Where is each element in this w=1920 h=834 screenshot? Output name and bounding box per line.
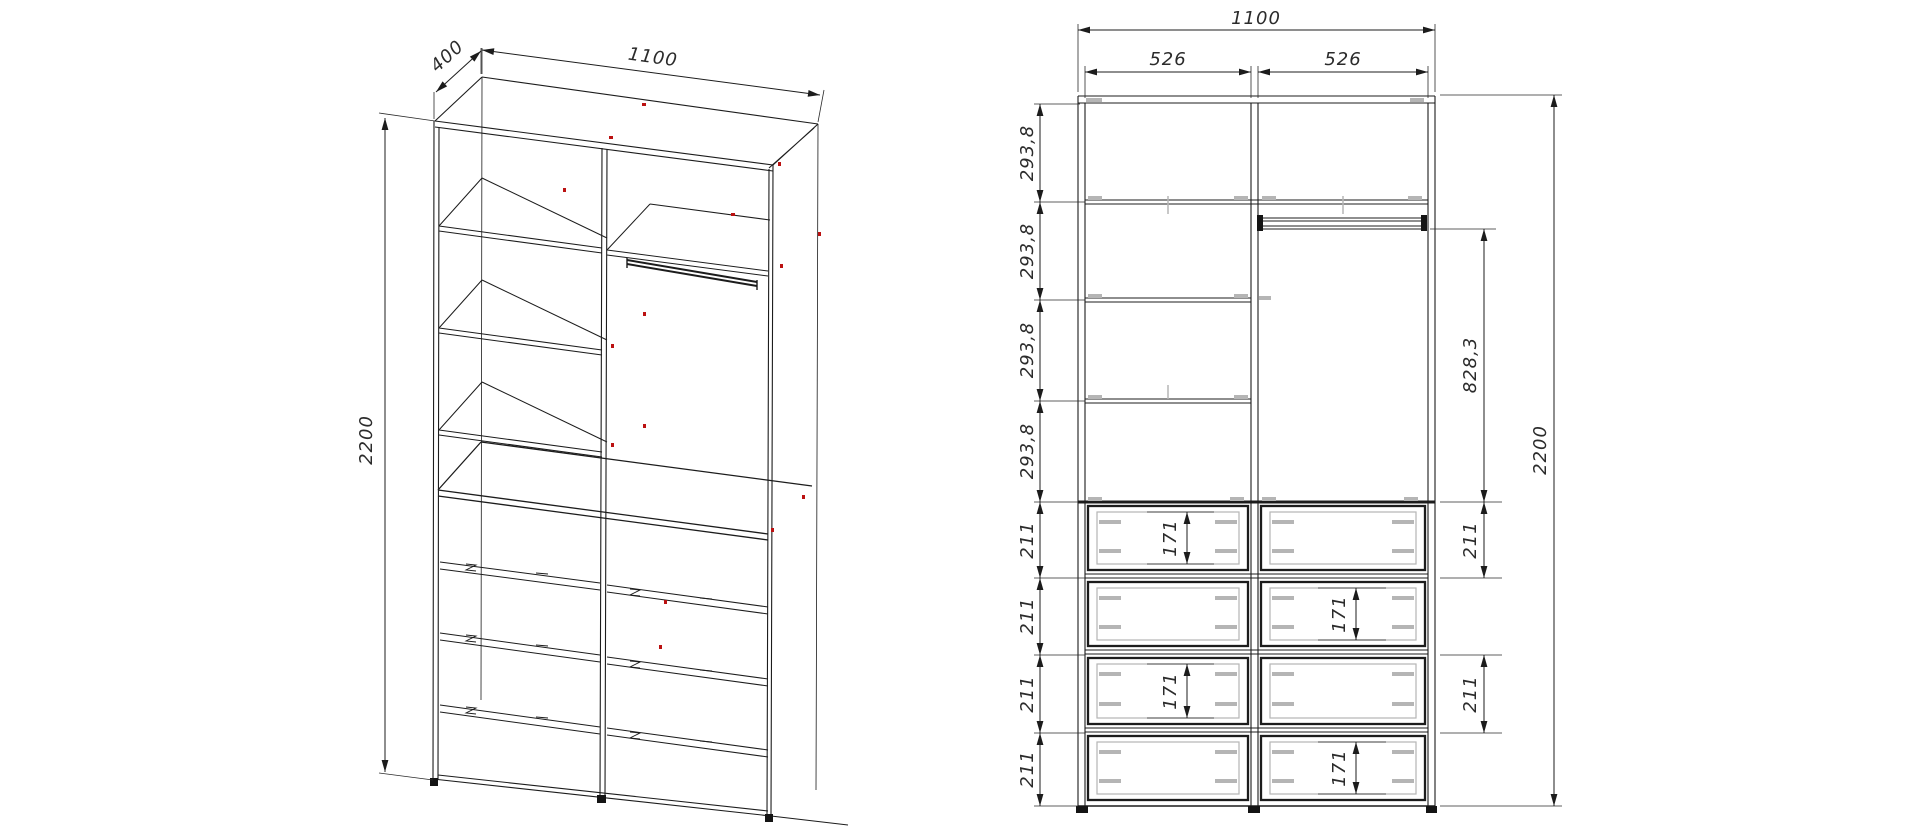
front-dim-shelf-1: 293,8 — [1017, 125, 1038, 182]
front-dim-drawer-front-4: 171 — [1329, 749, 1350, 786]
front-dim-drawer-4: 211 — [1017, 750, 1038, 787]
front-dim-opening-right: 526 — [1324, 49, 1361, 70]
iso-hanging-rod — [627, 258, 757, 290]
iso-view: 400 1100 2200 — [356, 36, 848, 825]
front-dim-width-total: 1100 — [1231, 8, 1281, 29]
front-dim-drawer-3: 211 — [1017, 675, 1038, 712]
front-dim-drawer-2: 211 — [1017, 597, 1038, 634]
front-shelf-fittings — [1086, 98, 1424, 501]
iso-dim-depth: 400 — [426, 36, 468, 77]
front-dim-shelf-3: 293,8 — [1017, 322, 1038, 379]
front-dim-drawer-front-3: 171 — [1160, 672, 1181, 709]
front-dim-rod-to-drawer: 828,3 — [1460, 337, 1481, 394]
cad-drawing-page: 400 1100 2200 — [0, 0, 1920, 834]
front-feet — [1076, 806, 1437, 813]
front-view: 1100 526 526 293,8 293,8 293,8 293,8 211… — [1017, 8, 1562, 813]
iso-drawer-rails — [440, 562, 768, 757]
iso-dim-width: 1100 — [627, 44, 679, 72]
front-dim-height-total: 2200 — [1530, 425, 1551, 475]
front-dimensions: 1100 526 526 293,8 293,8 293,8 293,8 211… — [1017, 8, 1562, 806]
iso-shelves-left — [439, 178, 607, 457]
iso-dim-height: 2200 — [356, 415, 377, 465]
front-dim-right-row-3: 211 — [1460, 675, 1481, 712]
front-dim-right-row-1: 211 — [1460, 521, 1481, 558]
front-carcass — [1078, 96, 1435, 806]
front-drawer-hardware — [1097, 512, 1416, 794]
wardrobe-technical-drawing: 400 1100 2200 — [0, 0, 1920, 834]
front-hanging-rod — [1257, 215, 1427, 231]
iso-drawer-top-shelf — [438, 442, 812, 540]
front-dim-drawer-front-2: 171 — [1329, 595, 1350, 632]
front-dim-shelf-4: 293,8 — [1017, 423, 1038, 480]
front-dim-opening-left: 526 — [1149, 49, 1186, 70]
front-dim-drawer-front-1: 171 — [1160, 519, 1181, 556]
front-drawer-fronts — [1088, 506, 1425, 800]
front-dim-drawer-1: 211 — [1017, 521, 1038, 558]
front-dim-shelf-2: 293,8 — [1017, 223, 1038, 280]
